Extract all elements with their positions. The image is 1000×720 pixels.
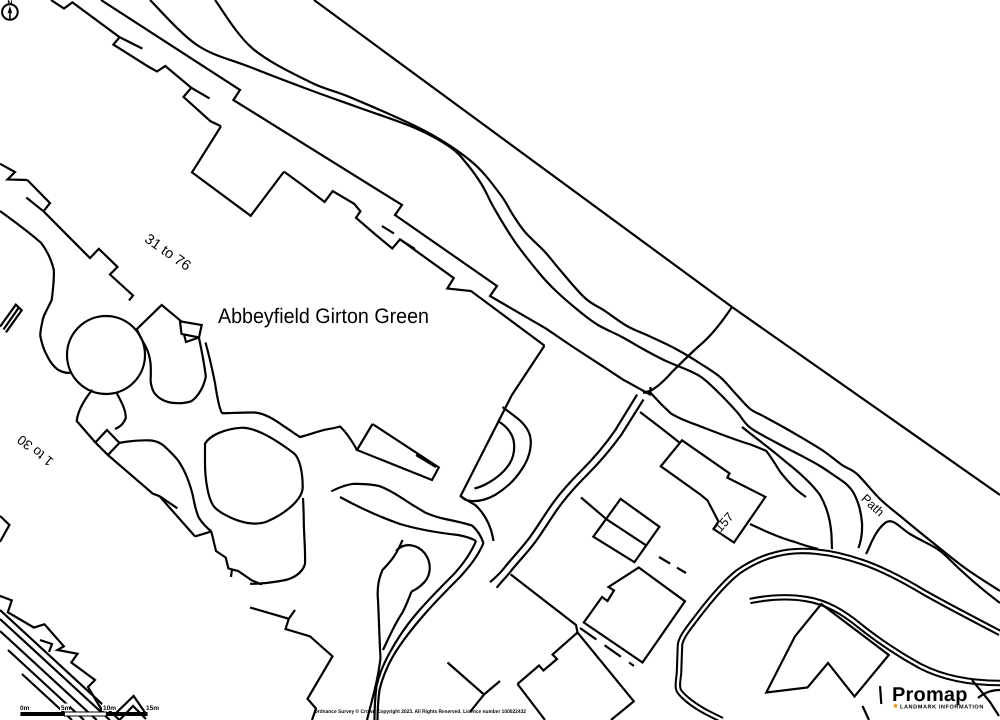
svg-text:0m: 0m (20, 705, 30, 712)
svg-text:15m: 15m (146, 705, 159, 712)
svg-text:Abbeyfield Girton Green: Abbeyfield Girton Green (218, 305, 429, 328)
svg-text:10m: 10m (103, 705, 116, 712)
svg-text:Ordnance Survey © Crown Copyri: Ordnance Survey © Crown Copyright 2023. … (314, 709, 526, 715)
svg-text:LANDMARK INFORMATION: LANDMARK INFORMATION (900, 705, 984, 711)
svg-text:5m: 5m (61, 705, 71, 712)
svg-text:N: N (7, 0, 12, 7)
svg-text:Promap: Promap (892, 684, 968, 706)
